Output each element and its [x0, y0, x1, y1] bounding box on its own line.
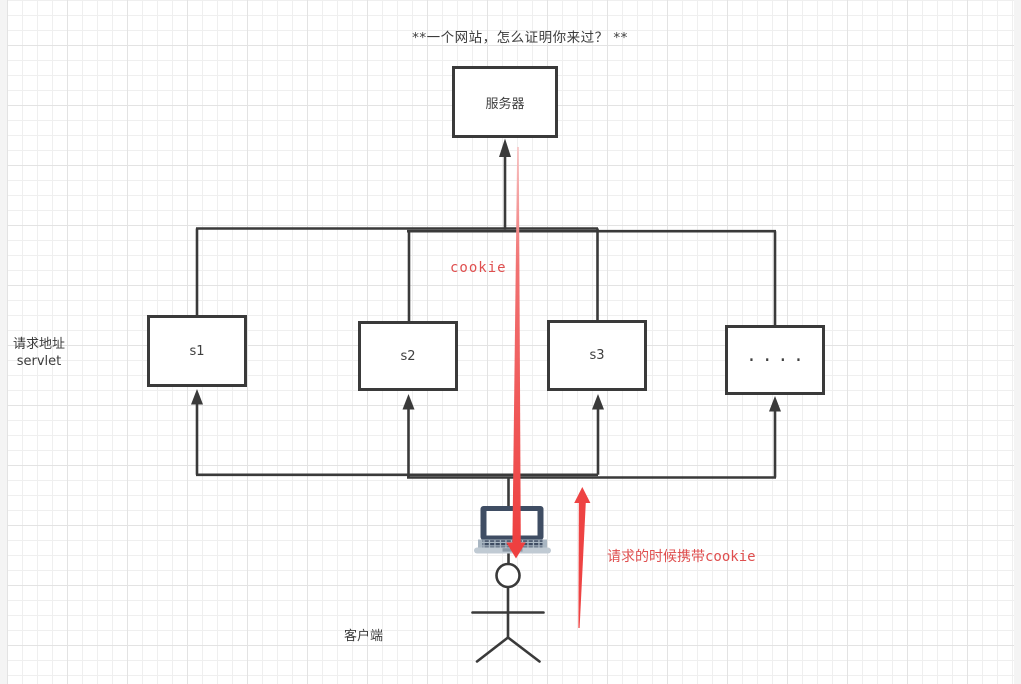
request-address-line1: 请求地址: [8, 336, 70, 353]
client-label: 客户端: [344, 625, 383, 644]
node-s3-label: s3: [589, 348, 604, 363]
diagram-canvas: **一个网站，怎么证明你来过？ ** 服务器 请求地址 servlet cook…: [0, 0, 1021, 684]
node-server: 服务器: [452, 66, 558, 138]
node-server-label: 服务器: [485, 93, 524, 112]
node-s3: s3: [547, 320, 647, 391]
node-more-label: ····: [739, 348, 811, 372]
node-s1: s1: [147, 315, 247, 387]
cookie-annotation: cookie: [450, 260, 507, 276]
node-s1-label: s1: [189, 344, 204, 359]
node-s2: s2: [358, 321, 458, 391]
node-s2-label: s2: [400, 349, 415, 364]
diagram-title: **一个网站，怎么证明你来过？ **: [360, 26, 680, 46]
canvas-right-edge: [1014, 0, 1021, 684]
canvas-left-edge: [0, 0, 7, 684]
request-address-line2: servlet: [8, 353, 70, 370]
carry-cookie-annotation: 请求的时候携带cookie: [607, 546, 756, 566]
node-more-servlets: ····: [725, 325, 825, 395]
request-address-label: 请求地址 servlet: [8, 336, 70, 370]
